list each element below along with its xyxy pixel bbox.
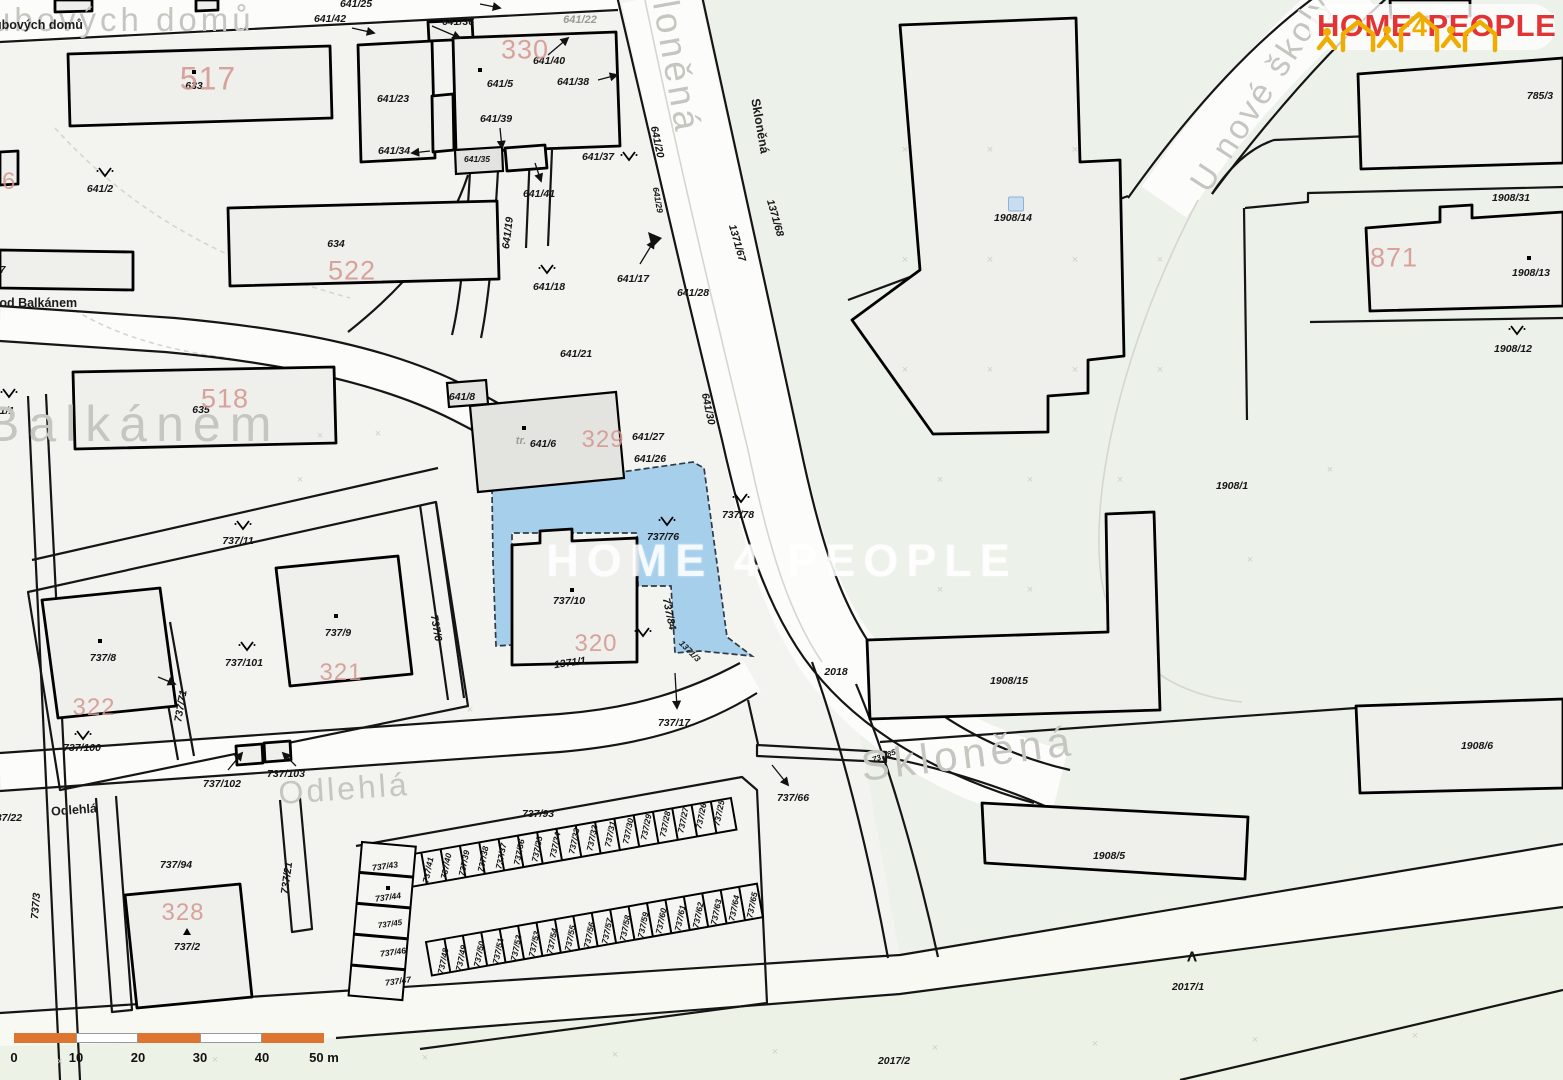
terrain-mark-icon: × [902,144,908,156]
parcel-label: 641/37 [582,151,614,163]
parcel-label: 2017/2 [878,1055,910,1067]
parcel-label: 737/52 [508,934,523,962]
terrain-mark-icon: × [1157,254,1163,266]
scale-bar-segment [138,1033,200,1043]
parcel-label: 641/6 [530,438,556,450]
parcel-label: 737/37 [493,842,508,870]
parcel-label: 737/43 [371,859,398,873]
terrain-mark-icon: × [1092,1038,1098,1050]
terrain-mark-icon: × [57,1056,63,1068]
parcel-label: 737/46 [379,945,406,959]
building-point-icon [386,886,390,890]
parcel-label: 737/48 [435,947,450,975]
tree-icon [732,491,750,505]
parcel-label: 641/5 [487,78,513,90]
parcel-label: 737/94 [160,859,192,871]
parcel-label: 641/2 [87,183,113,195]
parcel-label: 737/58 [617,914,632,942]
scale-bar-segment [14,1033,76,1043]
parcel-label: 737/36 [511,838,526,866]
terrain-mark-icon: × [1327,464,1333,476]
terrain-mark-icon: × [212,1054,218,1066]
terrain-mark-icon: × [937,474,943,486]
parcel-label: 737/11 [222,535,253,547]
tree-icon [634,625,652,639]
terrain-mark-icon: × [317,430,323,442]
parcel-label: 737/6 [428,614,444,642]
parcel-label: 641/36 [442,16,474,28]
scale-bar-label: 40 [255,1050,269,1065]
terrain-mark-icon: × [987,254,993,266]
parcel-label: 641/38 [557,76,589,88]
building-number: 328 [161,899,204,927]
parcel-label: 737/62 [690,901,705,929]
parcel-label: 737/100 [63,742,101,754]
parcel-label: 1908/15 [990,675,1028,687]
parcel-label: 737/101 [225,657,263,669]
parcel-label: 737/21 [279,861,295,894]
parcel-label-gray: 641/22 [563,14,597,26]
parcel-label: 737/3 [29,892,43,919]
parcel-label: 737/45 [377,918,402,930]
terrain-mark-icon: × [1412,1030,1418,1042]
logo-crown-icon [1309,4,1509,56]
parcel-label: 737/49 [453,944,468,972]
terrain-mark-icon: × [1252,1034,1258,1046]
parcel-label: 737/51 [490,937,505,965]
tree-icon [658,514,676,528]
terrain-mark-icon: × [297,474,303,486]
parcel-label: 641/42 [314,13,346,25]
parcel-label: 737/63 [708,898,723,926]
parcel-label: 641/34 [378,145,410,157]
tree-icon [0,386,18,400]
parcel-label: 641/8 [449,391,475,403]
building-point-icon [192,70,196,74]
building-number: 6 [2,168,16,196]
street-label: Pod Balkánem [0,296,77,310]
parcel-label: 737/56 [581,921,596,949]
terrain-mark-icon: × [1072,254,1078,266]
building-point-icon [334,614,338,618]
parcel-label: 737/39 [456,849,471,877]
parcel-label: 737/50 [471,940,486,968]
parcel-label: 737/54 [544,927,559,955]
parcel-label: 737/30 [620,817,635,845]
scale-bar [14,1033,324,1043]
parcel-label: 737/2 [174,941,200,953]
parcel-label: 634 [327,238,345,250]
scale-bar-segment [200,1033,262,1043]
building-point-icon [570,588,574,592]
parcel-label: 737/33 [566,827,581,855]
tree-icon [538,262,556,276]
parcel-label: 737/9 [325,627,351,639]
terrain-mark-icon: × [1072,364,1078,376]
map-canvas[interactable]: 641/25641/42641/36641/40641/5641/38641/2… [0,0,1563,1080]
building-point-icon [1527,256,1531,260]
parcel-label: 1371/3 [677,638,702,663]
parcel-label: 641/23 [377,93,409,105]
parcel-label: 641/29 [651,186,665,213]
parcel-label: 737/27 [675,806,690,834]
scale-bar-label: 10 [69,1050,83,1065]
terrain-mark-icon: × [1117,474,1123,486]
tree-icon [234,518,252,532]
parcel-label: 737/17 [658,717,690,729]
terrain-mark-icon: × [1027,584,1033,596]
tree-icon [238,639,256,653]
parcel-label: 641/21 [560,348,592,360]
terrain-mark-icon: × [375,428,381,440]
parcel-label: 641/41 [523,188,555,200]
parcel-label: 1908/14 [994,212,1032,224]
parcel-label: 1371/68 [764,198,786,238]
parcel-label: 737/64 [726,894,741,922]
scale-bar-segment [262,1033,324,1043]
street-name: Odlehlá [277,766,411,812]
terrain-mark-icon: × [932,1042,938,1054]
parcel-label-gray: tr. [516,435,526,447]
terrain-mark-icon: × [1072,144,1078,156]
terrain-mark-icon: × [1027,474,1033,486]
terrain-mark-icon: × [902,364,908,376]
parcel-label: 737/10 [553,595,585,607]
building-number: 320 [574,630,617,658]
scale-bar-label: 20 [131,1050,145,1065]
parcel-label: 641/18 [533,281,565,293]
street-label: ubových domů [0,18,83,32]
building-number: 871 [1370,243,1418,274]
parcel-label: 1371/67 [726,223,748,263]
parcel-label: 737/31 [602,820,617,848]
terrain-mark-icon: × [1157,364,1163,376]
parcel-label: 641/17 [617,273,649,285]
parcel-label: 737/34 [547,831,562,859]
parcel-label: 737/44 [374,890,401,904]
parcel-label: 737/60 [653,907,668,935]
terrain-mark-icon: × [772,1046,778,1058]
parcel-label: 737/93 [522,808,554,820]
triangle-point-icon [183,928,191,935]
parcel-label: 641/19 [500,216,516,249]
building-number: 322 [72,694,115,722]
street-name: Skloněná [858,717,1077,791]
parcel-label: 1908/1 [1216,480,1248,492]
parcel-label: 737/28 [657,810,672,838]
terrain-mark-icon: × [987,144,993,156]
parcel-label: 785/3 [1527,90,1553,102]
building-number: 517 [180,61,236,98]
logo: HOME4PEOPLE [1309,4,1555,50]
tree-icon [96,165,114,179]
tree-icon [620,149,638,163]
terrain-mark-icon: × [612,1049,618,1061]
parcel-label: 1908/6 [1461,740,1493,752]
parcel-label: 737/84 [660,597,678,631]
parcel-label: 641/26 [634,453,666,465]
building-point-icon [98,639,102,643]
parcel-label: 1908/5 [1093,850,1125,862]
parcel-label: 737/61 [672,904,687,932]
terrain-mark-icon: × [902,254,908,266]
peak-icon: Λ [1187,949,1197,966]
parcel-label: 1908/31 [1492,192,1530,204]
street-label: Skloněná [748,97,771,154]
tree-icon [1508,323,1526,337]
parcel-label: 737/35 [529,835,544,863]
building-number: 329 [581,426,624,454]
watermark: HOME 4 PEOPLE [546,535,1018,587]
parcel-label: 737/29 [638,813,653,841]
parcel-label: 737 [0,264,6,276]
parcel-label: 1908/12 [1494,343,1532,355]
parcel-label: 737/65 [744,891,759,919]
parcel-label: 737/53 [526,930,541,958]
terrain-mark-icon: × [467,704,473,716]
street-name: Balkánem [0,395,280,453]
parcel-label: 2018 [824,666,847,678]
scale-bar-segment [76,1033,138,1043]
building-number: 321 [319,659,362,687]
parcel-label: 641/25 [340,0,372,10]
building-marker-icon [1008,197,1024,212]
parcel-label: 737/32 [584,824,599,852]
parcel-label: 2017/1 [1172,981,1204,993]
parcel-label: 737/25 [711,799,726,827]
parcel-label: 737/47 [384,974,411,988]
parcel-label: 737/71 [172,689,189,723]
parcel-label: 641/30 [699,392,717,426]
parcel-label: 1908/13 [1512,267,1550,279]
parcel-label: 737/38 [475,845,490,873]
parcel-label: 737/66 [777,792,809,804]
parcel-label: 641/39 [480,113,512,125]
building-point-icon [522,426,526,430]
street-name: Skloněná [635,0,709,137]
parcel-label: 737/59 [635,911,650,939]
parcel-label: 737/78 [722,509,754,521]
building-number: 330 [501,35,549,66]
scale-bar-label: 50 m [309,1050,339,1065]
terrain-mark-icon: × [1247,554,1253,566]
parcel-label: 737/55 [562,924,577,952]
parcel-label: 641/27 [632,431,664,443]
parcel-label: 641/28 [677,287,709,299]
parcel-label: 641/35 [464,154,490,164]
street-label: Odlehlá [51,801,98,818]
parcel-label: 737/57 [599,917,614,945]
parcel-label: 737/41 [420,856,435,884]
scale-bar-label: 30 [193,1050,207,1065]
parcel-label: 737/22 [0,812,22,824]
building-point-icon [478,68,482,72]
parcel-label: 737/40 [438,852,453,880]
parcel-label: 737/8 [90,652,116,664]
parcel-label: 737/102 [203,778,241,790]
parcel-label: 737/26 [693,802,708,830]
scale-bar-label: 0 [10,1050,17,1065]
terrain-mark-icon: × [987,364,993,376]
tree-icon [74,728,92,742]
building-number: 522 [328,256,376,287]
terrain-mark-icon: × [422,1052,428,1064]
parcel-label: 641/20 [648,125,666,159]
